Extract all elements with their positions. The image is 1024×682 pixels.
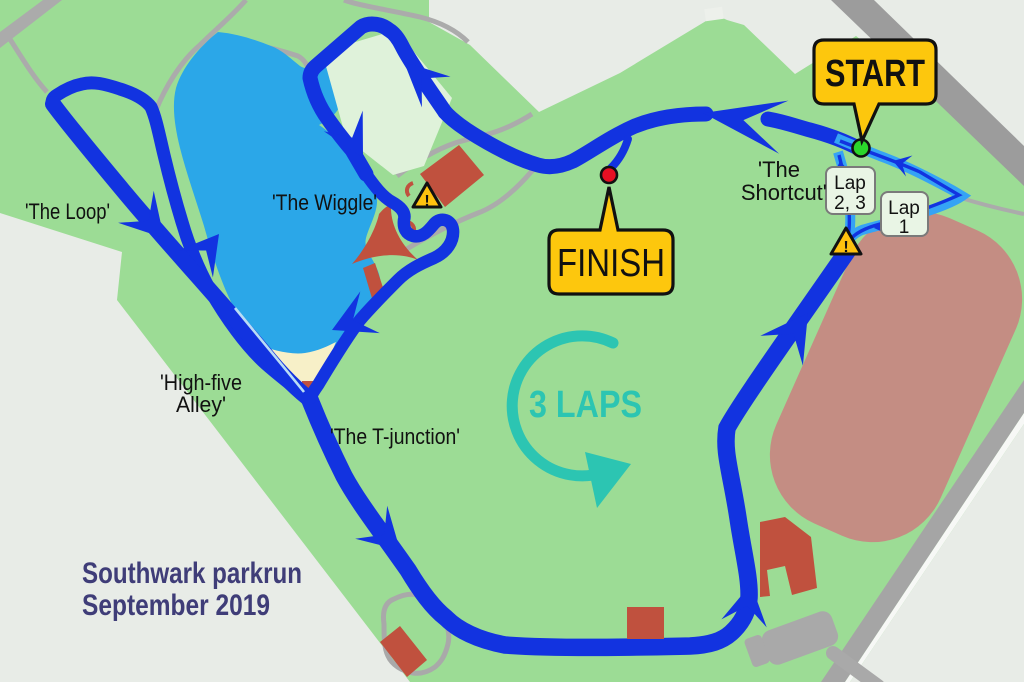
svg-text:FINISH: FINISH xyxy=(557,242,665,285)
svg-text:'The Loop': 'The Loop' xyxy=(25,199,110,224)
svg-text:'The T-junction': 'The T-junction' xyxy=(330,424,460,449)
svg-text:'The: 'The xyxy=(758,157,800,182)
svg-text:Lap: Lap xyxy=(834,173,866,194)
svg-text:Shortcut': Shortcut' xyxy=(741,180,827,205)
svg-text:September 2019: September 2019 xyxy=(82,589,270,622)
svg-text:2, 3: 2, 3 xyxy=(834,193,866,214)
svg-text:1: 1 xyxy=(899,217,910,238)
svg-text:3 LAPS: 3 LAPS xyxy=(529,384,642,426)
svg-text:Alley': Alley' xyxy=(176,392,226,417)
svg-text:Southwark parkrun: Southwark parkrun xyxy=(82,557,302,590)
svg-text:Lap: Lap xyxy=(888,198,920,219)
svg-text:!: ! xyxy=(843,239,848,256)
svg-text:!: ! xyxy=(424,193,429,210)
svg-text:START: START xyxy=(825,53,925,95)
svg-text:'The Wiggle': 'The Wiggle' xyxy=(272,190,377,215)
